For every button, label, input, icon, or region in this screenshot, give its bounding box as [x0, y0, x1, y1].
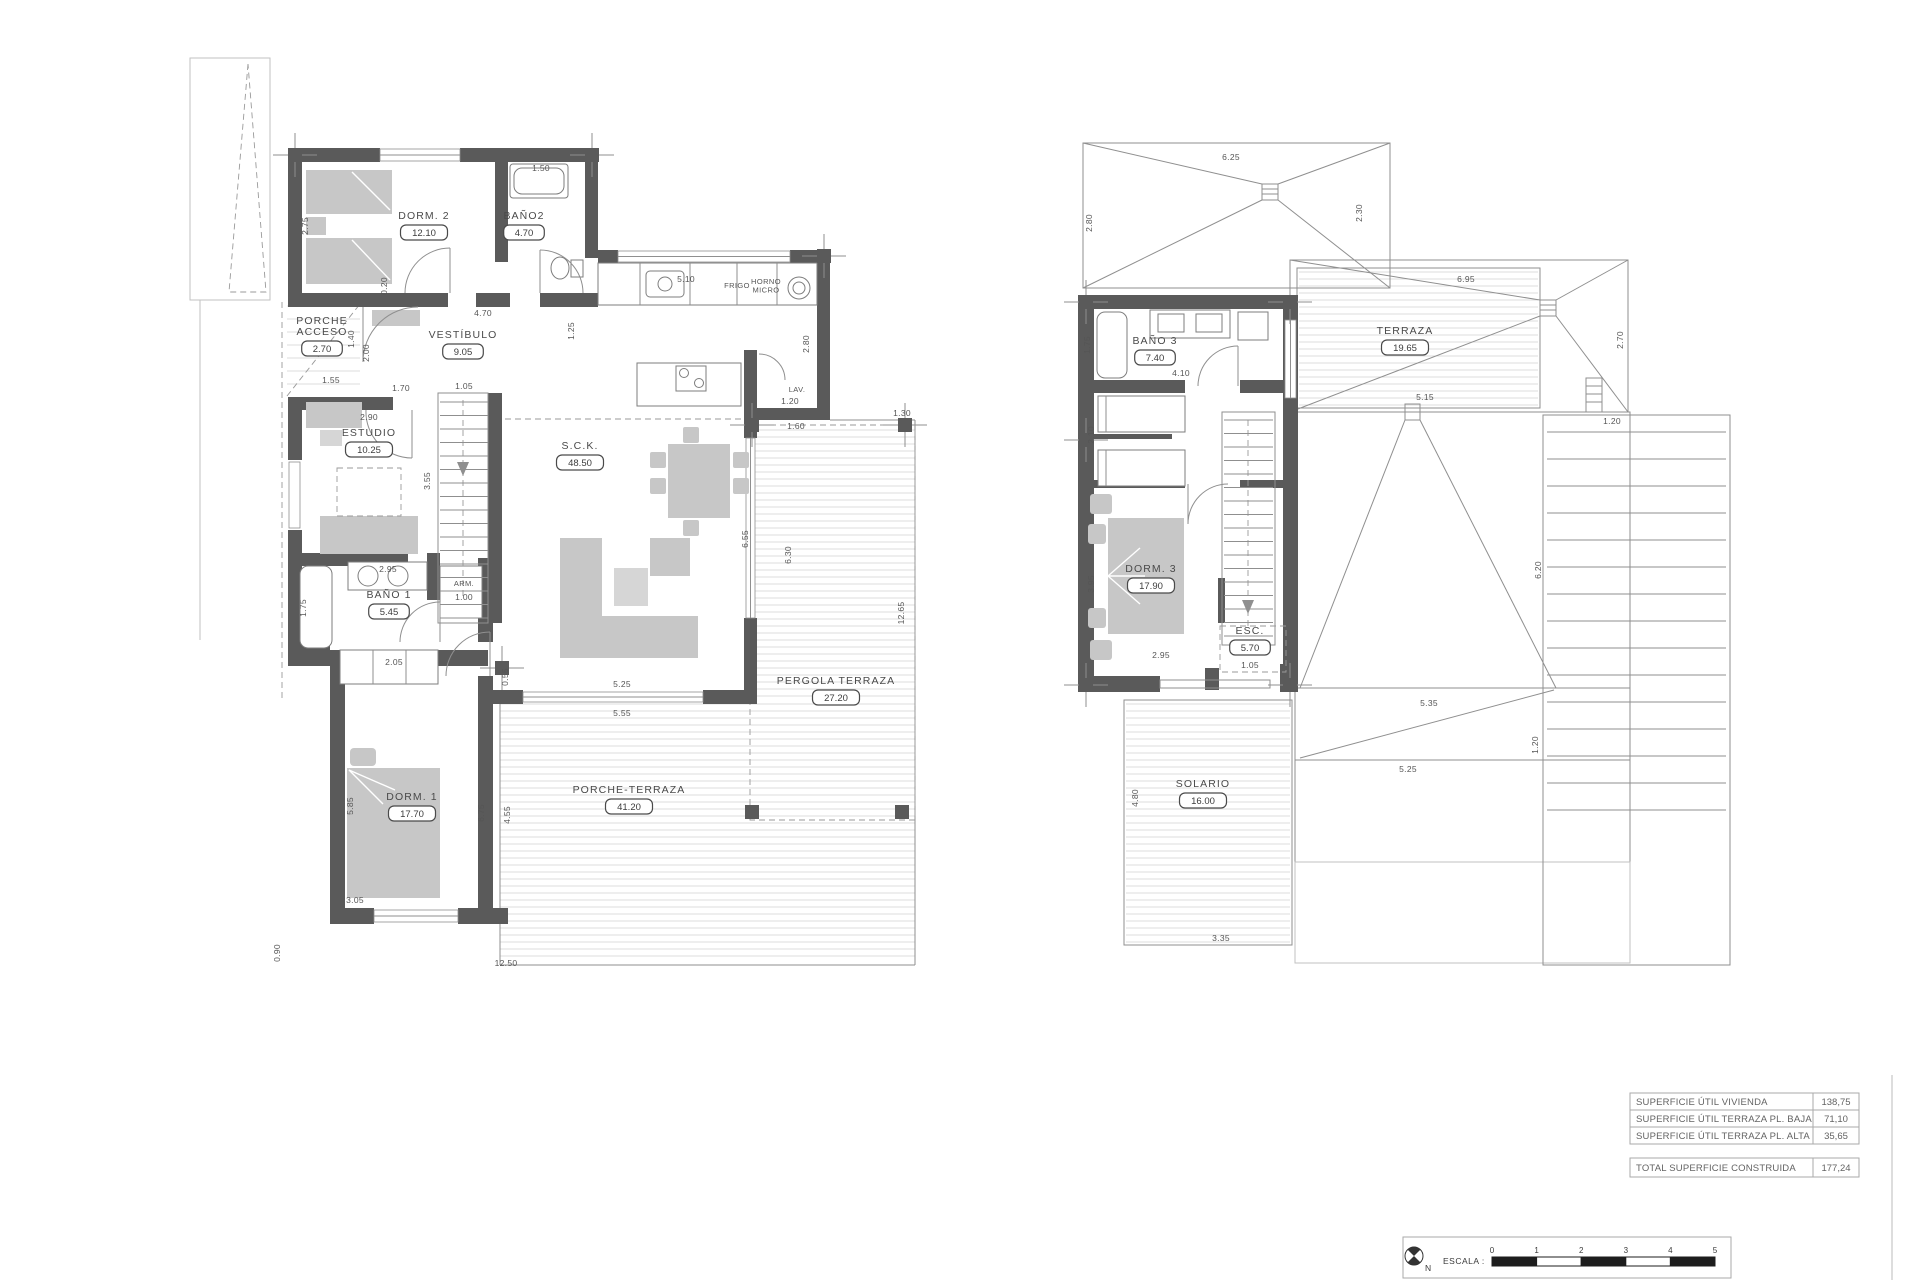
wardrobe: [340, 650, 438, 684]
dimension: 1.20: [781, 396, 799, 406]
dimension: 2.95: [379, 564, 397, 574]
dimension: 3.05: [346, 895, 364, 905]
room-name: TERRAZA: [1377, 325, 1434, 337]
dimension: 2.80: [801, 335, 811, 353]
pergola-boundary: [750, 425, 915, 820]
annotation: MICRO: [753, 286, 780, 295]
scale-segment: [1626, 1257, 1671, 1266]
dimension: 5.25: [1399, 764, 1417, 774]
floor-plan-canvas: DORM. 212.10BAÑO24.70PORCHEACCESO2.70VES…: [0, 0, 1920, 1280]
room-name: PORCHE-TERRAZA: [573, 784, 686, 796]
chair: [683, 520, 699, 536]
dimension: 5.10: [677, 274, 695, 284]
dimension: 2.70: [1615, 331, 1625, 349]
drawing-line: [1556, 316, 1628, 412]
dimension: 1.60: [787, 421, 805, 431]
annotation: LAV.: [789, 385, 806, 394]
room-area: 5.45: [380, 607, 399, 618]
dimension: 4.55: [502, 806, 512, 824]
room-name: S.C.K.: [562, 440, 599, 452]
drawing-line: [695, 379, 704, 388]
dimension: 5.85: [345, 797, 355, 815]
wall: [1283, 425, 1298, 692]
wall: [478, 676, 493, 924]
nightstand: [1090, 640, 1112, 660]
dimension: 2.75: [300, 217, 310, 235]
scale-segment: [1492, 1257, 1537, 1266]
wall: [1240, 480, 1283, 488]
dimension: 1.75: [1082, 336, 1092, 354]
room-name: BAÑO 3: [1132, 334, 1177, 347]
room-name: BAÑO2: [503, 209, 544, 222]
dimension: 4.10: [1172, 368, 1190, 378]
room-name: DORM. 2: [398, 210, 449, 222]
dimension: 3.95: [1086, 575, 1096, 593]
chair: [650, 478, 666, 494]
bed-double: [347, 768, 440, 898]
studio-sofa: [320, 516, 418, 554]
dimension: 1.55: [322, 375, 340, 385]
dimension: 5.15: [1416, 392, 1434, 402]
table-row-value: 138,75: [1821, 1097, 1850, 1108]
sink: [358, 566, 378, 586]
chair: [733, 452, 749, 468]
dimension: 2.05: [385, 657, 403, 667]
room-area: 9.05: [454, 347, 473, 358]
table-total-label: TOTAL SUPERFICIE CONSTRUIDA: [1636, 1163, 1796, 1174]
drawing-line: [759, 354, 785, 380]
pillar: [330, 909, 344, 923]
dimension: 5.25: [613, 679, 631, 689]
drawing-line: [405, 248, 450, 293]
room-name: ESTUDIO: [342, 427, 396, 439]
scale-bar-segments: 012345: [1490, 1246, 1718, 1266]
scale-bar: N ESCALA : 012345: [1403, 1237, 1731, 1278]
wall: [438, 650, 488, 666]
lower-band: [1295, 862, 1630, 963]
room-area: 19.65: [1393, 343, 1417, 354]
dimension: 1.40: [346, 330, 356, 348]
room-area: 7.40: [1146, 353, 1165, 364]
wall: [288, 397, 302, 460]
stair-direction-arrow: [1242, 600, 1254, 614]
dimension: 2.90: [360, 412, 378, 422]
room-area: 2.70: [313, 344, 332, 355]
armchair: [650, 538, 690, 576]
wall: [1240, 380, 1283, 393]
staircase: [1222, 412, 1275, 645]
room-name: BAÑO 1: [366, 588, 411, 601]
room-name: SOLARIO: [1176, 778, 1230, 790]
side-pergola: [1543, 415, 1730, 965]
dimension: 1.20: [1530, 736, 1540, 754]
scale-label: ESCALA :: [1443, 1256, 1485, 1266]
pillar: [1079, 295, 1093, 309]
wall: [1205, 668, 1219, 690]
chair: [733, 478, 749, 494]
dimension: 6.30: [783, 546, 793, 564]
wall: [330, 666, 345, 920]
shower: [1238, 312, 1268, 340]
pillar: [817, 249, 831, 263]
drawing-line: [1420, 420, 1556, 688]
drawing-line: [1278, 200, 1390, 288]
coffee-table: [614, 568, 648, 606]
wall: [1078, 295, 1298, 309]
drawing-line: [680, 369, 689, 378]
roof-low: [1083, 143, 1390, 288]
dimension: 4.80: [1130, 789, 1140, 807]
pillar: [895, 805, 909, 819]
scale-tick: 0: [1490, 1246, 1495, 1255]
dimension: 1.70: [392, 383, 410, 393]
wall: [703, 690, 757, 704]
pillow: [350, 748, 376, 766]
bed-single: [1098, 450, 1185, 486]
room-area: 12.10: [412, 228, 436, 239]
room-name: PERGOLA TERRAZA: [777, 675, 895, 687]
toilet: [551, 257, 569, 279]
annotation: FRIGO: [724, 281, 750, 290]
ground-floor-plan: [190, 58, 927, 965]
room-area: 4.70: [515, 228, 534, 239]
site-boundary: [190, 58, 270, 300]
room-name: DORM. 3: [1125, 563, 1176, 575]
room-area: 41.20: [617, 802, 641, 813]
bed-single: [306, 238, 392, 284]
dimension: 1.05: [1241, 660, 1259, 670]
drawing-line: [1408, 1256, 1421, 1265]
drawing-line: [1290, 260, 1540, 300]
wall: [540, 293, 598, 307]
chair: [650, 452, 666, 468]
wall: [289, 462, 300, 528]
pillar: [745, 418, 759, 432]
room-area: 48.50: [568, 458, 592, 469]
dimension: 6.55: [740, 530, 750, 548]
dimension: 1.00: [455, 592, 473, 602]
drawing-line: [1278, 143, 1390, 184]
dimension: 6.25: [1222, 152, 1240, 162]
dimension: 1.50: [532, 163, 550, 173]
dimension: 1.30: [893, 408, 911, 418]
sink: [1196, 314, 1222, 332]
bed-single: [306, 170, 392, 214]
pillar: [745, 805, 759, 819]
dimension: 4.70: [474, 308, 492, 318]
room-area: 17.90: [1139, 581, 1163, 592]
pillar: [1079, 678, 1093, 692]
sofa-bed-dashed: [337, 468, 401, 516]
annotation: ARM.: [454, 579, 474, 588]
room-name: ACCESO: [297, 326, 348, 338]
wall: [1094, 380, 1185, 393]
wall: [598, 250, 618, 263]
room-name: ESC.: [1236, 625, 1265, 637]
wall: [488, 393, 502, 623]
access-ramp-dashed: [229, 64, 266, 292]
kitchen-counter: [598, 263, 817, 305]
dimension: 1.25: [566, 322, 576, 340]
pillar: [288, 148, 302, 162]
room-area: 16.00: [1191, 796, 1215, 807]
pillow: [1088, 524, 1106, 544]
table-total-value: 177,24: [1821, 1163, 1850, 1174]
pillar: [585, 148, 599, 162]
sink: [1158, 314, 1184, 332]
north-arrow-icon: [1405, 1247, 1423, 1265]
solario-edge: [1124, 700, 1292, 945]
dimension: 3.35: [1212, 933, 1230, 943]
table-row-label: SUPERFICIE ÚTIL TERRAZA PL. ALTA: [1636, 1131, 1810, 1142]
scale-tick: 2: [1579, 1246, 1584, 1255]
bathtub: [1097, 312, 1127, 378]
dimension: 2.30: [1354, 204, 1364, 222]
dimension: 0.90: [272, 944, 282, 962]
chimney: [1586, 378, 1602, 412]
wall: [288, 293, 448, 307]
scale-tick: 5: [1713, 1246, 1718, 1255]
dimension: 0.55: [500, 668, 510, 686]
dimension: 12.50: [495, 958, 518, 968]
upper-floor-doors: [1188, 346, 1238, 524]
dimension: 1.05: [455, 381, 473, 391]
dimension: 1.75: [298, 599, 308, 617]
drawing-line: [1300, 420, 1405, 688]
roof-main: [1295, 412, 1630, 862]
drawing-line: [1083, 200, 1262, 288]
dimension: 5.35: [1420, 698, 1438, 708]
dining-table: [668, 444, 730, 518]
dimension: 5.55: [613, 708, 631, 718]
dimension: 12.65: [896, 602, 906, 625]
dimension: 1.20: [1603, 416, 1621, 426]
north-label: N: [1425, 1263, 1432, 1273]
bed-single: [1098, 396, 1185, 432]
scale-segment: [1670, 1257, 1715, 1266]
dimension: 6.95: [1457, 274, 1475, 284]
wall: [288, 650, 340, 666]
pillow: [1088, 608, 1106, 628]
terrace-deck-edge: [1297, 268, 1540, 408]
drawing-line: [1083, 143, 1262, 184]
dimension: 2.95: [1152, 650, 1170, 660]
desk: [306, 402, 362, 428]
surface-summary-table: SUPERFICIE ÚTIL VIVIENDA 138,75 SUPERFIC…: [1630, 1093, 1859, 1177]
dimension: 3.55: [422, 472, 432, 490]
roof-drain: [1540, 300, 1556, 316]
upper-floor-plan: [1064, 143, 1730, 965]
pillar: [1283, 295, 1297, 309]
room-name: VESTÍBULO: [429, 328, 498, 341]
table-row-label: SUPERFICIE ÚTIL VIVIENDA: [1636, 1097, 1768, 1108]
pillar: [473, 909, 487, 923]
desk-chair: [320, 430, 342, 446]
dimension: 6.75: [476, 804, 486, 822]
room-name: DORM. 1: [386, 791, 437, 803]
room-area: 17.70: [400, 809, 424, 820]
roof-drain: [1262, 184, 1278, 200]
room-area: 5.70: [1241, 643, 1260, 654]
scale-segment: [1581, 1257, 1626, 1266]
scale-tick: 3: [1624, 1246, 1629, 1255]
table-row-label: SUPERFICIE ÚTIL TERRAZA PL. BAJA: [1636, 1114, 1812, 1125]
pillar: [898, 418, 912, 432]
room-area: 27.20: [824, 693, 848, 704]
table-row-value: 35,65: [1824, 1131, 1848, 1142]
scale-tick: 4: [1668, 1246, 1673, 1255]
drawing-line: [1408, 1247, 1421, 1256]
sofa: [560, 616, 698, 658]
scale-tick: 1: [1534, 1246, 1539, 1255]
wall: [493, 690, 523, 704]
dimension: 2.10: [1086, 426, 1096, 444]
scale-segment: [1537, 1257, 1582, 1266]
dimension: 6.20: [1533, 561, 1543, 579]
nightstand: [1090, 494, 1112, 514]
pillar: [1283, 678, 1297, 692]
wall: [476, 293, 510, 307]
drawing-line: [793, 282, 805, 294]
drawing-line: [571, 260, 583, 277]
drawing-line: [1547, 432, 1726, 810]
chair: [683, 427, 699, 443]
drawing-line: [658, 277, 672, 291]
dimension: 0.20: [379, 277, 389, 295]
table-row-value: 71,10: [1824, 1114, 1848, 1125]
drawing-line: [1556, 260, 1628, 300]
wall: [1094, 434, 1172, 439]
dimension: 2.80: [1084, 214, 1094, 232]
drawing-line: [1198, 346, 1238, 386]
room-area: 10.25: [357, 445, 381, 456]
dimension: 2.00: [361, 344, 371, 362]
